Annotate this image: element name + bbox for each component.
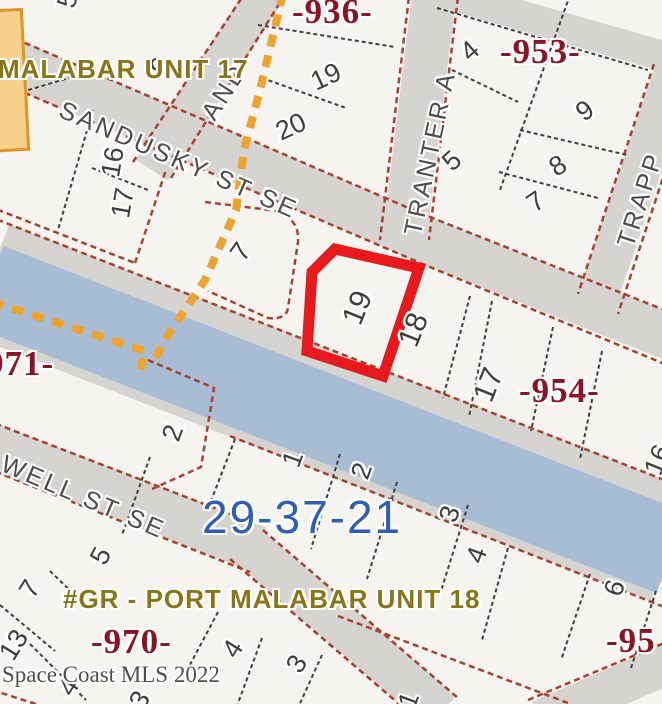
plat-number-953: -953- (500, 32, 581, 72)
boundary-line (135, 170, 166, 263)
plat-number-970: -970- (91, 622, 172, 662)
lot-line (561, 574, 590, 660)
mls-watermark: Space Coast MLS 2022 (2, 662, 220, 688)
lot-line (443, 296, 470, 398)
plat-number-971: 971- (0, 344, 54, 384)
boundary-line (0, 690, 64, 704)
lot-number: 17 (105, 186, 141, 221)
lot-line (520, 130, 627, 155)
unit-label-malabar-17: MALABAR UNIT 17 (0, 54, 248, 85)
unit-label-port-malabar-18: #GR - PORT MALABAR UNIT 18 (63, 584, 480, 615)
plat-number-954: -954- (519, 371, 600, 411)
street-band-southwest (246, 544, 442, 704)
plat-number-936: -936- (292, 0, 373, 32)
plat-map[interactable]: 5 16 17 7 9 19 20 4 9 5 8 7 19 18 17 16 … (0, 0, 662, 704)
section-township-range: 29-37-21 (202, 490, 402, 544)
plat-number-955: -95 (606, 621, 656, 661)
lot-line (499, 172, 598, 198)
